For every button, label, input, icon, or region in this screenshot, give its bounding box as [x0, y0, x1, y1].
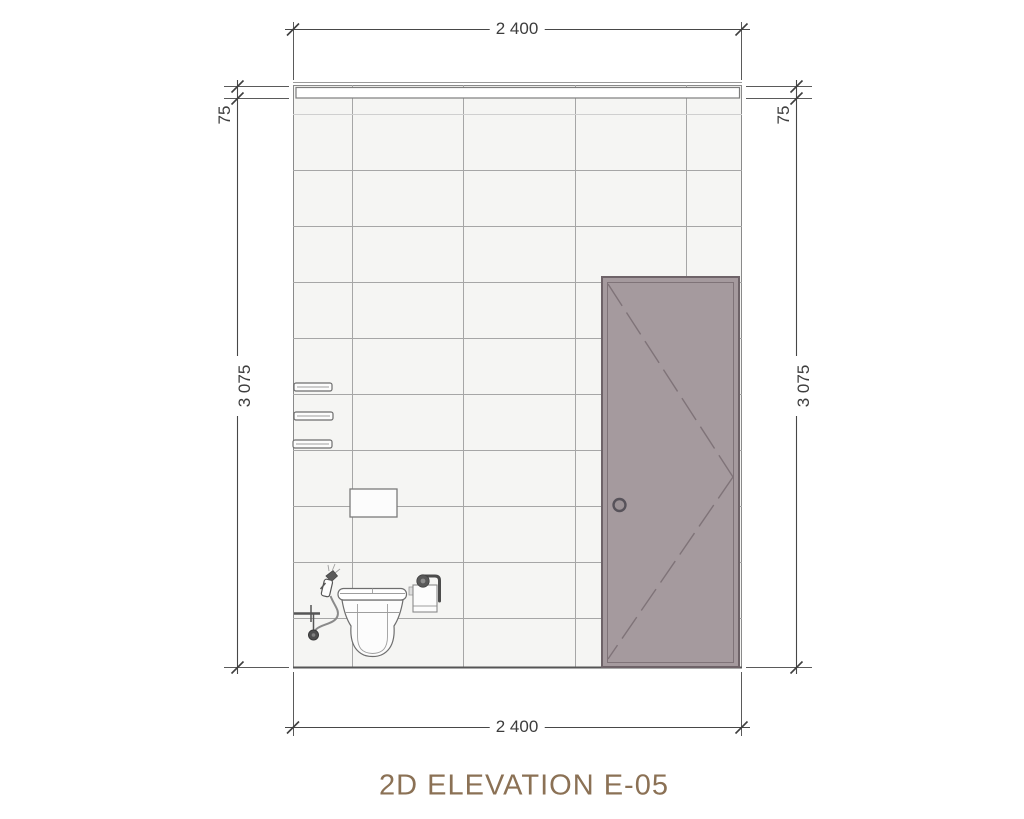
flush-plate [350, 489, 397, 517]
dim-right-band-label: 75 [774, 98, 794, 133]
elevation-svg [0, 0, 1024, 819]
shelf [294, 412, 333, 420]
shelf [293, 440, 332, 448]
dim-left-height-label: 3 075 [235, 357, 255, 416]
shelf [294, 383, 332, 391]
dim-top-width-label: 2 400 [490, 19, 545, 39]
door [602, 277, 739, 667]
door-handle [614, 499, 626, 511]
dimension-left [224, 80, 289, 674]
door-leaf [602, 277, 739, 667]
dim-bottom-width-label: 2 400 [490, 717, 545, 737]
drawing-title: 2D ELEVATION E-05 [379, 770, 669, 803]
paper-sheet [413, 585, 437, 612]
elevation-drawing: 2 400 2 400 75 75 3 075 3 075 2D ELEVATI… [0, 0, 1024, 819]
top-band [293, 83, 742, 99]
dim-left-band-label: 75 [215, 98, 235, 133]
dim-right-height-label: 3 075 [794, 357, 814, 416]
